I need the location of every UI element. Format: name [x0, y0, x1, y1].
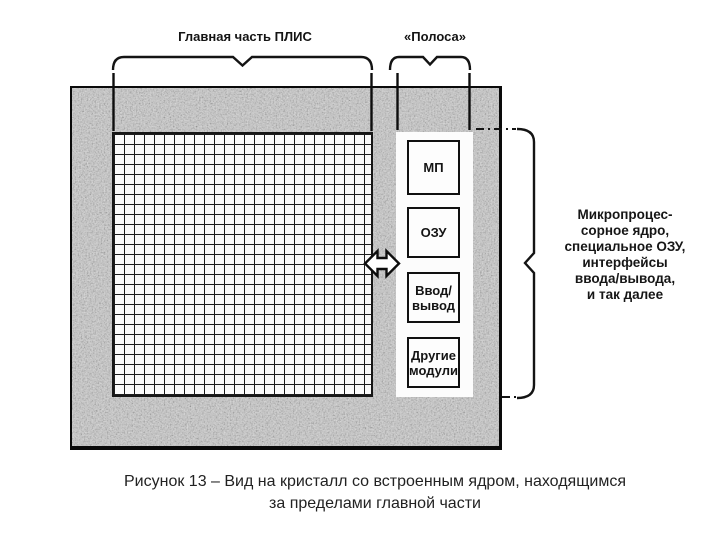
- module-box-ozu: ОЗУ: [407, 207, 460, 258]
- brace-strip: [390, 57, 470, 70]
- label-fpga-main-part: Главная часть ПЛИС: [130, 29, 360, 44]
- core-description-note: Микропроцес- сорное ядро, специальное ОЗ…: [545, 207, 705, 303]
- label-strip: «Полоса»: [385, 29, 485, 44]
- brace-main-part: [113, 57, 372, 70]
- module-box-mp: МП: [407, 140, 460, 195]
- bidirectional-arrow-icon: [363, 247, 401, 280]
- brace-core-contents: [517, 129, 534, 398]
- figure-caption: Рисунок 13 – Вид на кристалл со встроенн…: [30, 471, 720, 515]
- figure-canvas: МП ОЗУ Ввод/ вывод Другие модули Главная…: [0, 0, 720, 540]
- embedded-core-strip: МП ОЗУ Ввод/ вывод Другие модули: [396, 132, 473, 397]
- module-box-io: Ввод/ вывод: [407, 272, 460, 323]
- fpga-fabric-grid: [112, 132, 373, 397]
- module-box-other: Другие модули: [407, 337, 460, 388]
